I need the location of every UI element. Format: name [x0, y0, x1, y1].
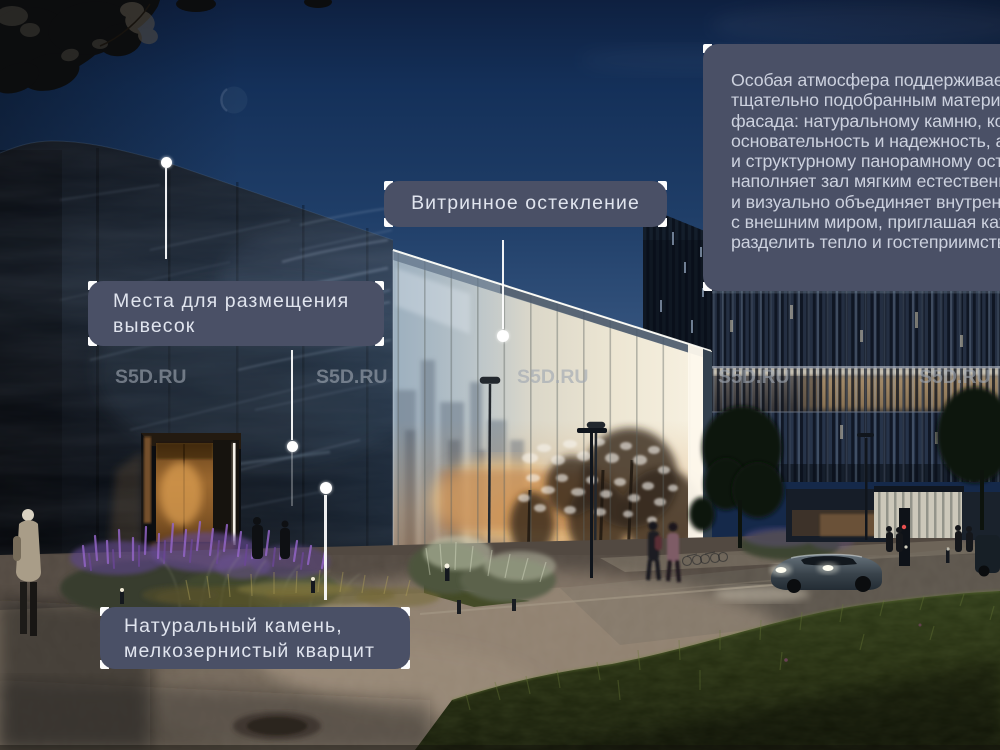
svg-text:S5D.RU: S5D.RU — [919, 366, 991, 388]
svg-text:S5D.RU: S5D.RU — [316, 366, 388, 388]
svg-text:S5D.RU: S5D.RU — [115, 366, 187, 388]
svg-text:S5D.RU: S5D.RU — [718, 366, 790, 388]
svg-text:S5D.RU: S5D.RU — [517, 366, 589, 388]
